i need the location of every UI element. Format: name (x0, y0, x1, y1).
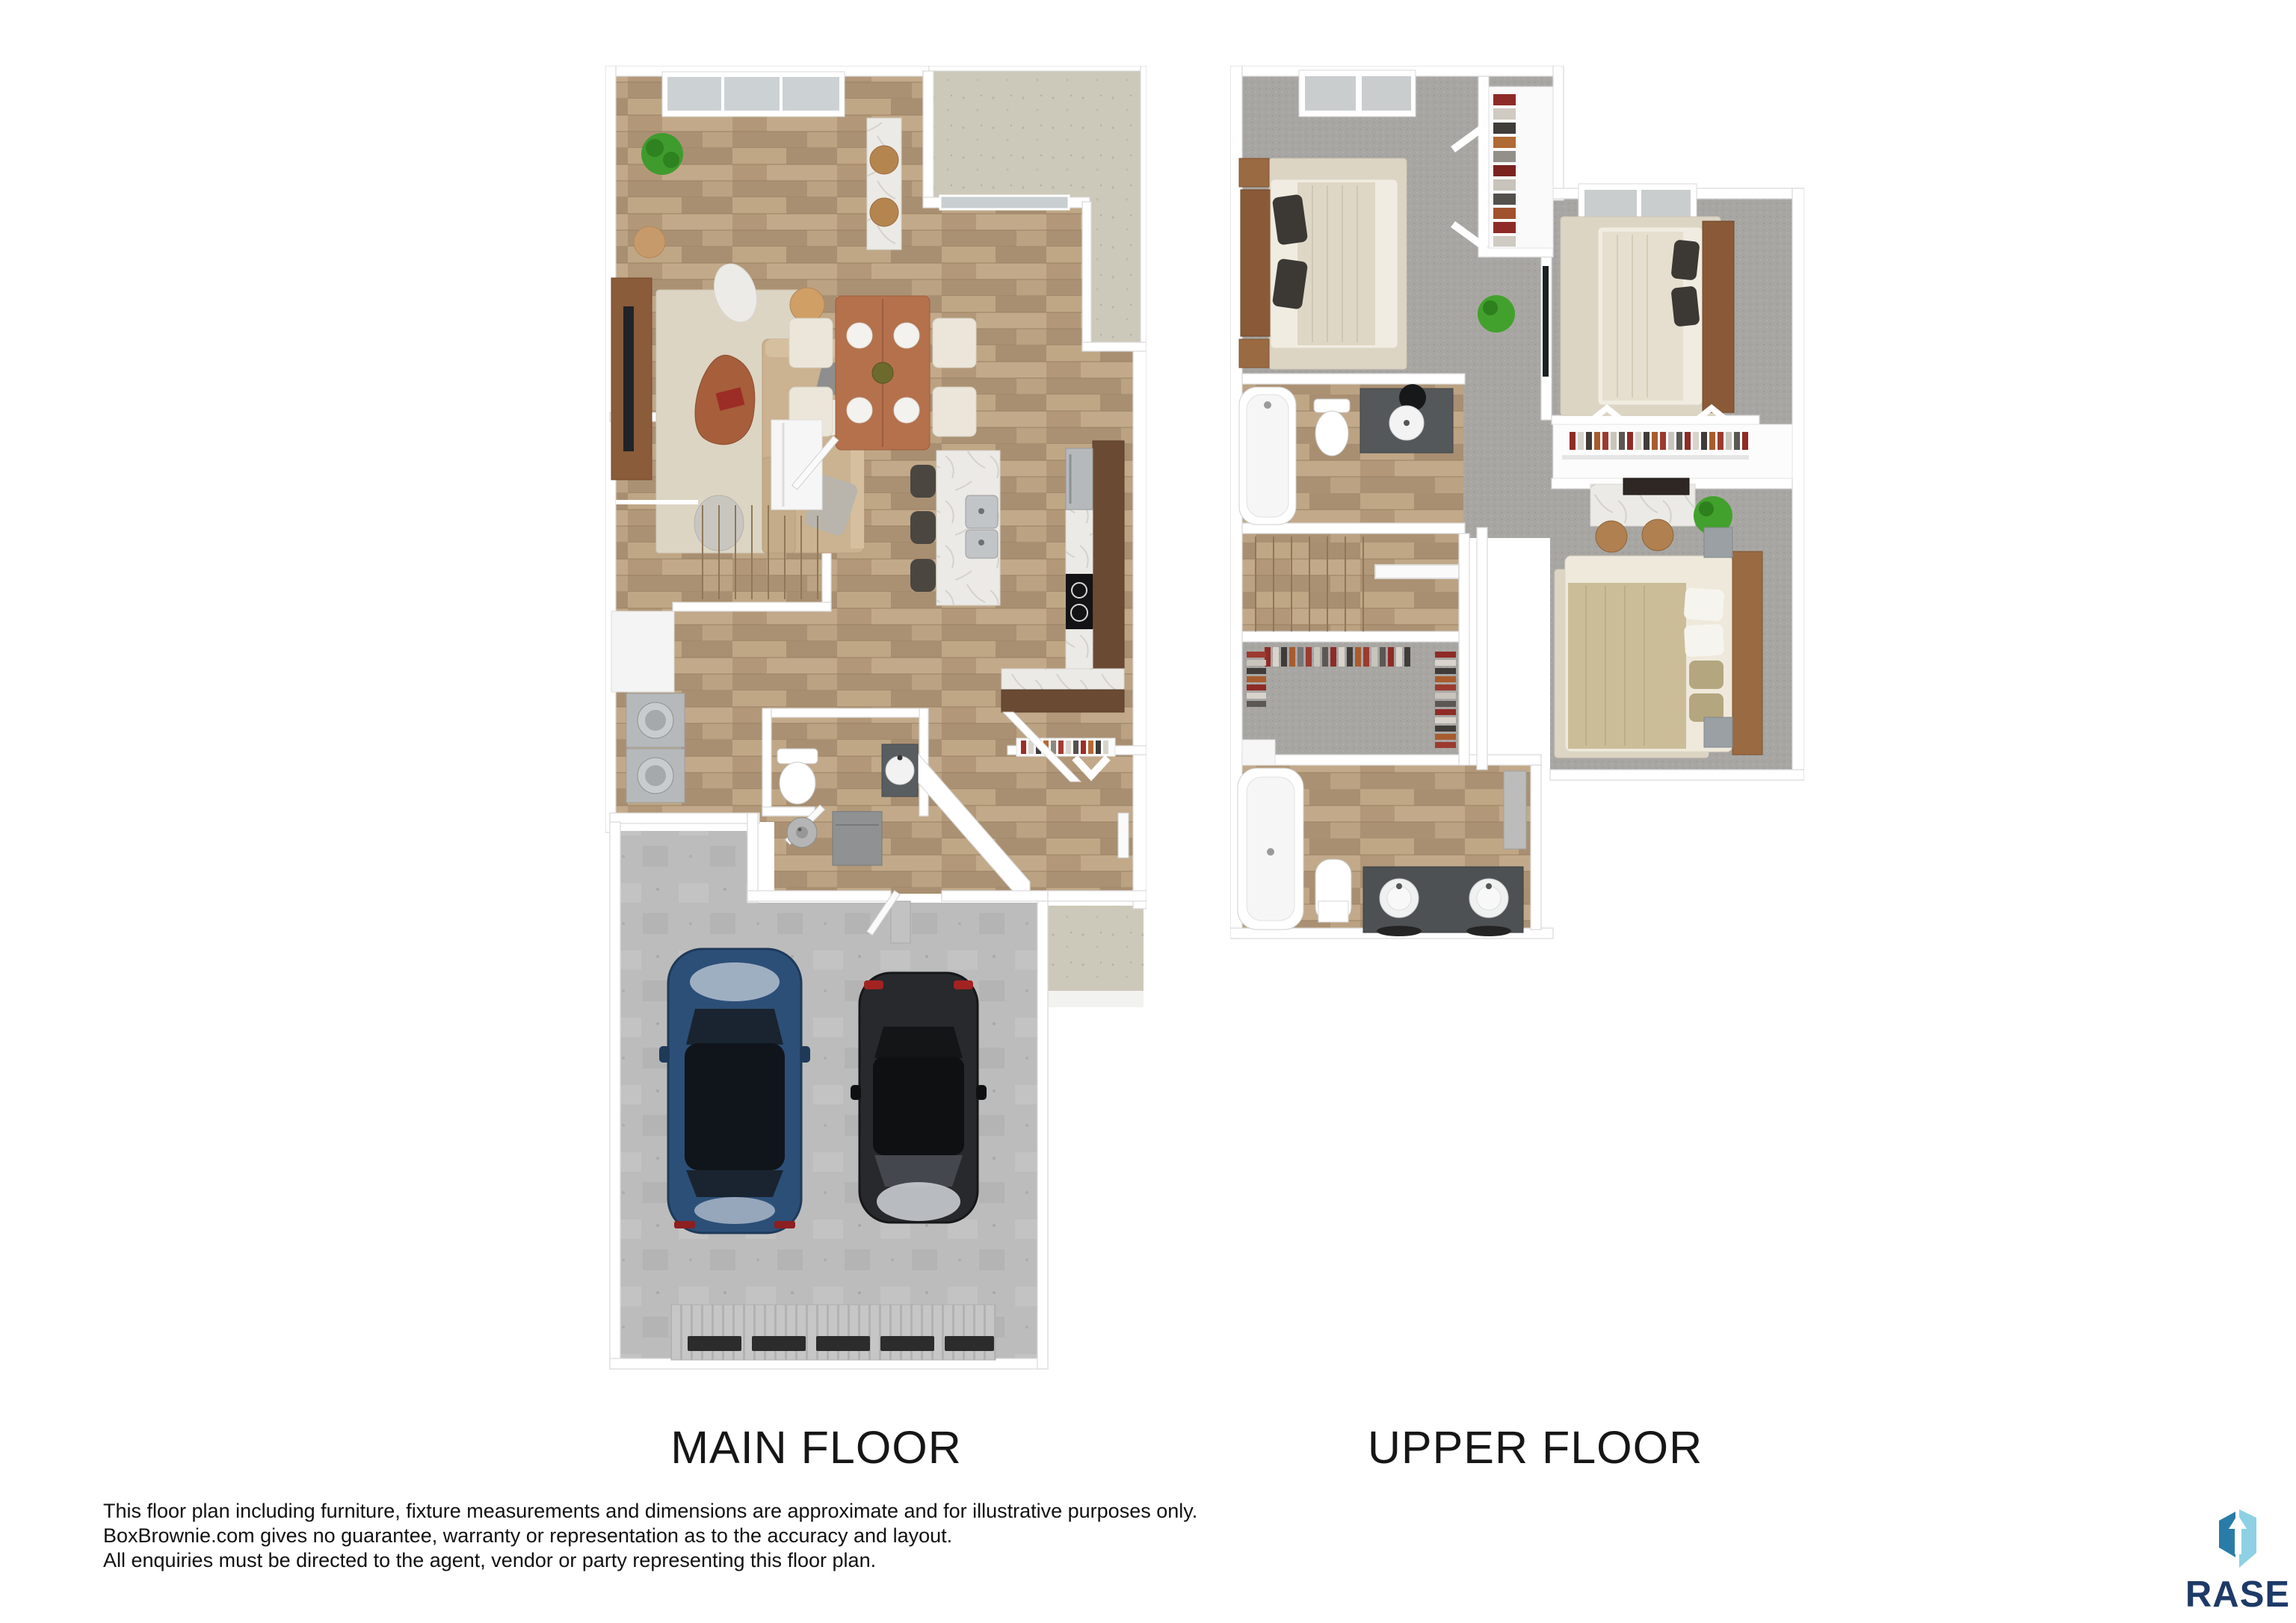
stool (1642, 519, 1673, 551)
car-black (851, 973, 987, 1222)
water-heater (787, 817, 817, 847)
dryer (626, 749, 685, 803)
closet-dresser (1242, 740, 1275, 765)
dining-chair (789, 318, 833, 368)
upper-floor-plan (1230, 66, 1804, 942)
tv (623, 306, 634, 451)
disclaimer-line-1: This floor plan including furniture, fix… (103, 1499, 1197, 1524)
centerpiece-bowl (872, 362, 893, 383)
kitchen-l-counter (1002, 669, 1124, 712)
stairs-upper-floor (1242, 534, 1463, 642)
washer (626, 693, 685, 747)
hall-cabinet (611, 611, 674, 692)
floor-lamp (634, 226, 665, 258)
utility-cabinet (833, 811, 882, 865)
dining-chair (933, 387, 976, 436)
rase-logo-text: RASE (2179, 1574, 2296, 1616)
upper-floor-label: UPPER FLOOR (1368, 1421, 1703, 1474)
linen-cabinet (1504, 771, 1526, 849)
pillow (1684, 587, 1725, 622)
potted-plant (1478, 295, 1515, 333)
living-room-windows (662, 72, 845, 117)
headboard (1241, 190, 1271, 336)
bathtub (1239, 387, 1296, 525)
vanity-sink (882, 744, 918, 797)
pillow (1689, 661, 1723, 689)
nightstand (1704, 717, 1732, 747)
stove (1066, 574, 1093, 629)
bathtub (1238, 768, 1303, 930)
stool (1596, 521, 1627, 552)
bedroom-1 (1543, 184, 1734, 415)
toilet (1314, 399, 1350, 456)
potted-plant (641, 133, 683, 175)
nightstand (1704, 528, 1732, 557)
garage-door (671, 1305, 996, 1360)
toilet (1315, 859, 1351, 922)
bar-stool (870, 198, 898, 226)
disclaimer-line-2: BoxBrownie.com gives no guarantee, warra… (103, 1524, 1197, 1548)
island-stool (910, 559, 936, 592)
nightstand (1239, 158, 1269, 187)
disclaimer-line-3: All enquiries must be directed to the ag… (103, 1548, 1197, 1573)
toilet (777, 749, 818, 804)
dining-window (940, 196, 1069, 209)
bed-blanket (1297, 182, 1375, 345)
tv (1543, 266, 1549, 377)
bed-blanket (1602, 232, 1683, 401)
car-blue (659, 949, 810, 1233)
kitchen-island (936, 451, 1000, 605)
vanity-sink (1360, 384, 1453, 453)
island-stool (910, 511, 936, 544)
pillow (1670, 285, 1700, 327)
island-stool (910, 465, 936, 498)
main-floor-label: MAIN FLOOR (670, 1421, 962, 1474)
double-vanity (1363, 867, 1523, 936)
front-door (1118, 813, 1129, 858)
garage-step (891, 901, 910, 943)
pillow (1684, 624, 1724, 658)
headboard (1703, 221, 1734, 412)
main-floor-plan (605, 66, 1147, 1370)
headboard (1732, 551, 1762, 755)
bar-stool (870, 146, 898, 174)
rase-logo: RASE (2179, 1508, 2296, 1616)
coffee-bar (867, 118, 901, 250)
rase-box-arrow-icon (2216, 1508, 2259, 1572)
dining-chair (933, 318, 976, 368)
disclaimer-text: This floor plan including furniture, fix… (103, 1499, 1197, 1573)
nightstand (1239, 339, 1269, 368)
floor-lamp (790, 288, 824, 322)
pillow (1670, 239, 1700, 280)
